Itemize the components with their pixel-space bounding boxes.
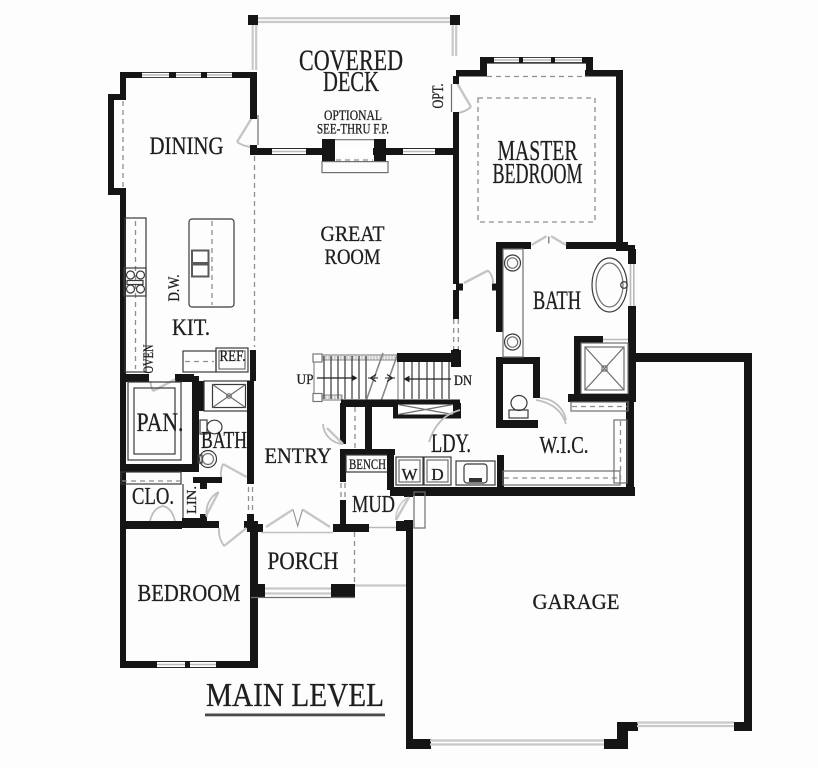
svg-text:LDY.: LDY. [431,429,471,458]
svg-text:SEE-THRU F.P.: SEE-THRU F.P. [317,122,389,138]
svg-text:KIT.: KIT. [172,315,210,340]
svg-text:REF.: REF. [220,348,246,365]
svg-text:W: W [401,465,418,484]
svg-text:CLO.: CLO. [132,484,174,510]
svg-text:D: D [431,465,443,484]
svg-text:LIN.: LIN. [185,486,200,514]
svg-text:DN: DN [454,373,472,389]
svg-text:BENCH: BENCH [349,457,386,473]
svg-text:UP: UP [297,372,314,388]
svg-text:DINING: DINING [150,133,224,160]
svg-text:ROOM: ROOM [325,244,381,269]
svg-text:BEDROOM: BEDROOM [493,159,583,190]
svg-text:MAIN LEVEL: MAIN LEVEL [206,677,384,714]
svg-text:W.I.C.: W.I.C. [540,433,589,459]
svg-text:BEDROOM: BEDROOM [138,581,241,607]
svg-text:OPT.: OPT. [430,84,447,109]
svg-text:ENTRY: ENTRY [265,443,332,468]
svg-text:D.W.: D.W. [166,275,183,302]
svg-text:BATH: BATH [533,286,581,315]
svg-text:GARAGE: GARAGE [533,589,620,614]
svg-text:PAN.: PAN. [137,408,184,437]
svg-text:DECK: DECK [323,66,379,98]
svg-text:OVEN: OVEN [141,344,157,373]
svg-text:PORCH: PORCH [268,548,339,575]
svg-text:MUD: MUD [352,492,395,518]
svg-text:GREAT: GREAT [321,221,386,246]
